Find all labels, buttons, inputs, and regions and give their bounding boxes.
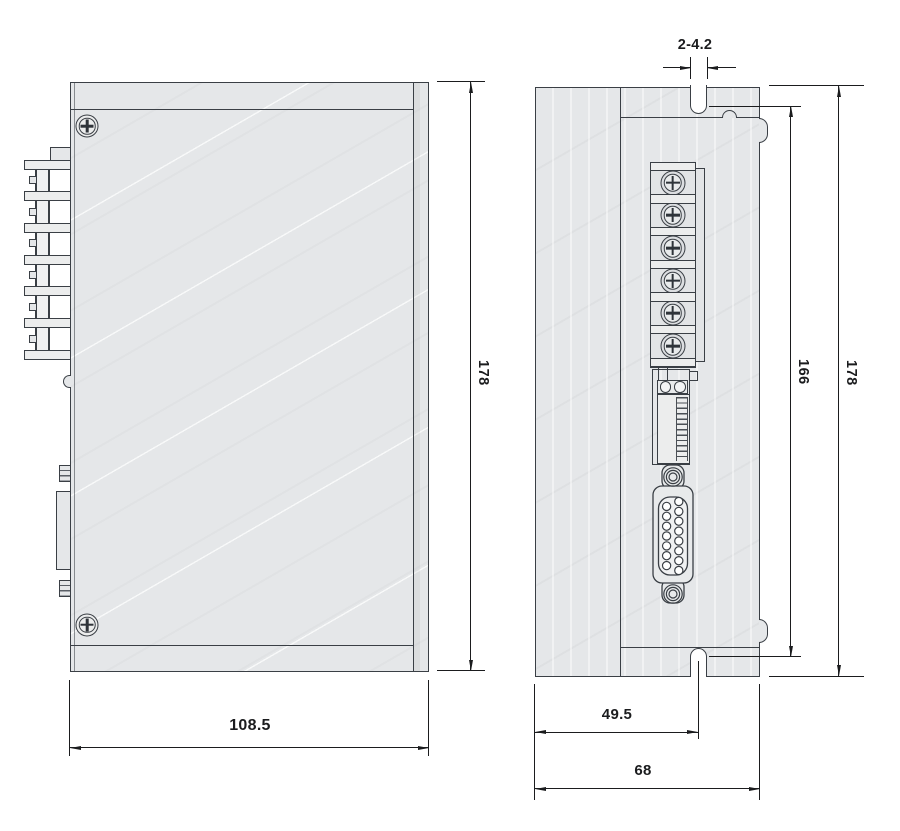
terminal-screw <box>660 203 685 228</box>
dsub-side-screw-top <box>59 465 71 482</box>
db15-pin <box>663 512 671 520</box>
phillips-cross-icon <box>671 241 674 255</box>
pin-connector-hole <box>674 381 686 393</box>
side-view-bottom-inner-line <box>70 645 413 646</box>
phillips-cross-icon <box>671 339 674 353</box>
dimension-line <box>470 82 471 672</box>
arrowhead <box>749 787 760 791</box>
arrowhead <box>535 787 546 791</box>
extension-line <box>437 670 485 671</box>
extension-line <box>690 57 691 80</box>
arrowhead <box>469 660 473 671</box>
db15-pin <box>675 507 683 515</box>
terminal-strip-gap <box>35 233 50 255</box>
dimension-line <box>838 86 839 677</box>
terminal-strip-tab <box>29 208 36 216</box>
terminal-strip-tab <box>29 335 36 343</box>
terminal-strip-side-step <box>50 147 70 161</box>
arrowhead <box>687 730 698 734</box>
terminal-screw <box>660 334 685 359</box>
db15-pin <box>675 497 683 505</box>
dimension-line <box>535 732 699 733</box>
terminal-strip-fin <box>24 191 71 201</box>
db15-pin <box>663 542 671 550</box>
extension-line <box>428 680 429 756</box>
arrowhead <box>789 106 793 117</box>
side-view-top-inner-line <box>70 109 413 110</box>
extension-line <box>69 680 70 756</box>
technical-drawing-canvas: 2-4.2 178 166 178 108.5 49.5 68 <box>0 0 900 831</box>
corner-screw-top <box>76 115 99 138</box>
terminal-strip-tab <box>29 271 36 279</box>
arrowhead <box>680 66 691 70</box>
terminal-barrier-bar <box>650 162 697 172</box>
pin-connector-hole <box>660 381 672 393</box>
extension-line <box>707 57 708 80</box>
db15-pin <box>675 527 683 535</box>
terminal-barrier-bar <box>650 260 697 270</box>
dsub-side-screw-bottom <box>59 580 71 597</box>
db15-pin <box>675 537 683 545</box>
extension-line <box>534 684 535 800</box>
arrowhead <box>707 66 718 70</box>
extension-line <box>709 106 801 107</box>
arrowhead <box>837 86 841 97</box>
front-view-top-inner-line <box>620 117 760 118</box>
terminal-strip-gap <box>35 328 50 350</box>
extension-line <box>698 661 699 739</box>
extension-line <box>759 684 760 800</box>
phillips-cross-icon <box>671 176 674 190</box>
terminal-strip-tab <box>29 176 36 184</box>
extension-line <box>709 656 801 657</box>
arrowhead <box>418 746 429 750</box>
dim-label-front-width: 68 <box>612 763 674 780</box>
terminal-strip-fin <box>24 223 71 233</box>
terminal-barrier-bar <box>650 292 697 302</box>
terminal-strip-fin <box>24 255 71 265</box>
phillips-cross-icon <box>86 120 89 133</box>
dimension-line <box>790 106 791 657</box>
arrowhead <box>535 730 546 734</box>
dimension-line <box>535 788 760 789</box>
terminal-strip-gap <box>35 296 50 318</box>
corner-screw-bottom <box>76 613 99 636</box>
front-view-flange-line <box>620 87 621 676</box>
dimension-line <box>70 747 429 748</box>
dsub-side-body <box>56 491 71 570</box>
side-view-left-inner-line <box>74 82 75 671</box>
dim-label-front-height: 178 <box>844 360 859 386</box>
db15-pin <box>675 557 683 565</box>
phillips-cross-icon <box>671 208 674 222</box>
arrowhead <box>70 746 81 750</box>
terminal-strip-gap <box>35 265 50 287</box>
terminal-strip-tab <box>29 303 36 311</box>
terminal-screw <box>660 268 685 293</box>
terminal-barrier-bar <box>650 358 697 368</box>
db15-pin <box>675 547 683 555</box>
dim-label-side-height: 178 <box>476 360 491 386</box>
side-screw-bump-bottom <box>759 619 768 644</box>
flange-screw-arc <box>722 110 738 118</box>
db15-pin <box>663 502 671 510</box>
db15-pin <box>675 566 683 574</box>
side-edge-bump <box>63 375 71 388</box>
terminal-strip-fin <box>24 286 71 296</box>
terminal-screw <box>660 170 685 195</box>
db15-pin <box>675 517 683 525</box>
phillips-cross-icon <box>86 618 89 631</box>
extension-line <box>769 85 864 86</box>
db15-connector <box>645 460 701 608</box>
db15-pin <box>663 552 671 560</box>
terminal-strip-fin <box>24 160 71 170</box>
terminal-strip-fin <box>24 318 71 328</box>
extension-line <box>437 81 485 82</box>
terminal-strip-gap <box>35 170 50 192</box>
extension-line <box>769 676 864 677</box>
dim-label-side-width: 108.5 <box>190 717 310 735</box>
front-view-bottom-inner-line <box>620 647 760 648</box>
arrowhead <box>789 646 793 657</box>
terminal-strip-gap <box>35 201 50 223</box>
terminal-barrier-bar <box>650 227 697 237</box>
db15-pin <box>663 532 671 540</box>
cutout-outline-step <box>690 371 699 381</box>
terminal-screw <box>660 301 685 326</box>
phillips-cross-icon <box>671 306 674 320</box>
arrowhead <box>837 665 841 676</box>
db15-pin <box>663 522 671 530</box>
arrowhead <box>469 82 473 93</box>
side-view-body <box>70 82 429 672</box>
dim-label-slot-offset: 49.5 <box>586 707 648 724</box>
db15-pin <box>663 562 671 570</box>
terminal-strip-fin <box>24 350 71 360</box>
dim-label-front-mount-span: 166 <box>796 359 811 385</box>
terminal-barrier-bar <box>650 325 697 335</box>
dim-label-slot-width: 2-4.2 <box>664 38 726 54</box>
dip-switch-teeth <box>676 397 688 461</box>
phillips-cross-icon <box>671 274 674 288</box>
mounting-slot-top <box>690 85 707 114</box>
terminal-strip-tab <box>29 239 36 247</box>
terminal-screw <box>660 236 685 261</box>
side-view-right-band-shade <box>414 82 420 671</box>
side-screw-bump-top <box>759 118 768 143</box>
terminal-barrier-bar <box>650 194 697 204</box>
